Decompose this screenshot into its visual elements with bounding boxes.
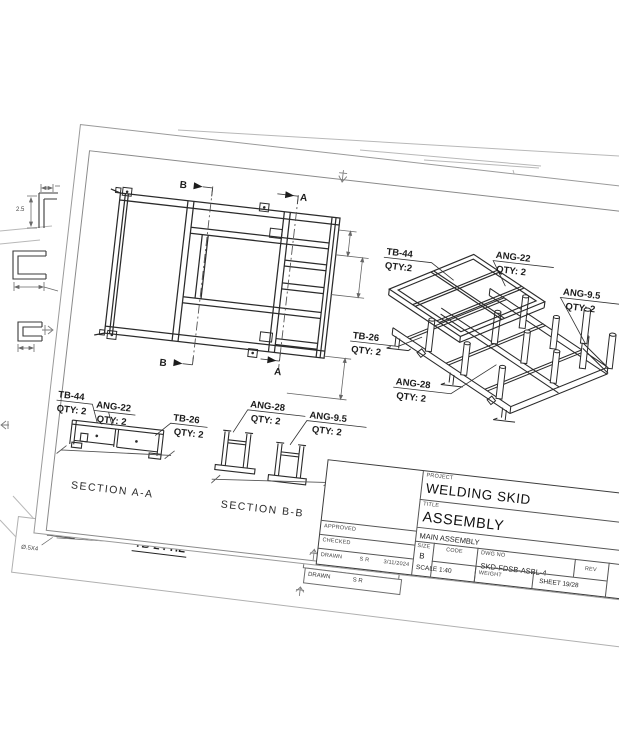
iso-tb26-qty: QTY: 2 — [351, 344, 382, 358]
seca-label-tb44: TB-44 QTY: 2 — [55, 389, 101, 423]
section-marker-b-bottom: B — [159, 354, 193, 373]
size-value: B — [419, 551, 425, 561]
bg-dim-2-5: 2.5 — [16, 207, 25, 213]
rev-label: REV — [585, 566, 598, 573]
plan-frame-lines — [94, 189, 340, 361]
approved-label: APPROVED — [324, 523, 357, 533]
bg-channel-profile-1 — [13, 251, 46, 279]
section-marker-a-bottom: A — [259, 351, 284, 378]
sheet-value: SHEET 19/28 — [539, 578, 579, 589]
drawn-label: DRAWN — [320, 552, 342, 560]
marker-a-bottom-text: A — [274, 367, 282, 379]
drawing-viewer-canvas: 2.5 Ø.5 — [0, 0, 619, 749]
center-mark-top — [338, 170, 347, 183]
iso-label-tb44: TB-44 QTY:2 — [382, 246, 456, 280]
secb-drawing-right-unit — [268, 442, 310, 485]
drawn-by-value: S R — [359, 556, 369, 563]
bg-channel-2-dim — [18, 344, 34, 352]
tb24-dia-label: Ø.5X4 — [21, 545, 39, 553]
secb-drawing-left-unit — [215, 430, 259, 474]
behind-drawn-by: S R — [352, 577, 363, 584]
size-label: SIZE — [417, 543, 431, 550]
border-center-mark-tb24 — [295, 586, 304, 596]
section-marker-a-top: A — [276, 190, 307, 205]
secb-label-ang28: ANG-28 QTY: 2 — [233, 398, 307, 441]
title-label: TITLE — [423, 501, 440, 509]
secb-ground-line — [211, 464, 332, 496]
iso-ang28-qty: QTY: 2 — [396, 391, 427, 405]
bg-channel-1-dim — [14, 282, 58, 291]
secb-ang28-qty: QTY: 2 — [250, 413, 281, 427]
section-a-view: TB-44 QTY: 2 ANG-22 QTY: 2 TB-26 QTY: 2 — [44, 386, 220, 514]
titleblock-empty-cell — [322, 460, 423, 530]
marker-a-top-text: A — [299, 192, 307, 204]
iso-label-tb26: TB-26 QTY: 2 — [349, 329, 422, 363]
border-center-mark-left-sheet — [1, 421, 9, 429]
drawn-date-value: 3/11/2024 — [383, 559, 409, 568]
bg-channel-profile-2 — [18, 322, 42, 341]
iso-tb26-name: TB-26 — [352, 330, 379, 344]
dwg-no-label: DWG NO — [481, 550, 506, 559]
behind-drawn-label: DRAWN — [308, 572, 331, 581]
seca-tb26-qty: QTY: 2 — [173, 427, 204, 441]
section-b-title: SECTION B-B — [220, 498, 304, 519]
seca-tb44-qty: QTY: 2 — [56, 403, 87, 417]
iso-ang95-qty: QTY: 2 — [565, 301, 596, 315]
weight-label: WEIGHT — [478, 570, 502, 579]
border-center-mark-main-left — [42, 325, 53, 335]
bg-angle-profile-detail: 2.5 — [16, 184, 60, 228]
iso-tb44-name: TB-44 — [386, 247, 414, 261]
rev-spare-cell — [605, 563, 619, 602]
main-drawing-sheet: B B A A — [33, 124, 619, 611]
section-marker-b-top: B — [179, 180, 213, 197]
marker-b-bottom-text: B — [159, 358, 167, 370]
secb-ang95-qty: QTY: 2 — [311, 424, 342, 438]
marker-b-top-text: B — [179, 180, 187, 192]
checked-label: CHECKED — [322, 537, 351, 546]
iso-label-ang22: ANG-22 QTY: 2 — [490, 250, 555, 292]
seca-tb44-name: TB-44 — [58, 389, 86, 403]
seca-tb26-name: TB-26 — [173, 412, 200, 426]
code-label: CODE — [446, 547, 463, 555]
section-a-title: SECTION A-A — [70, 479, 154, 500]
secb-label-ang95: ANG-9.5 QTY: 2 — [290, 408, 368, 453]
iso-tb44-qty: QTY:2 — [384, 260, 412, 274]
